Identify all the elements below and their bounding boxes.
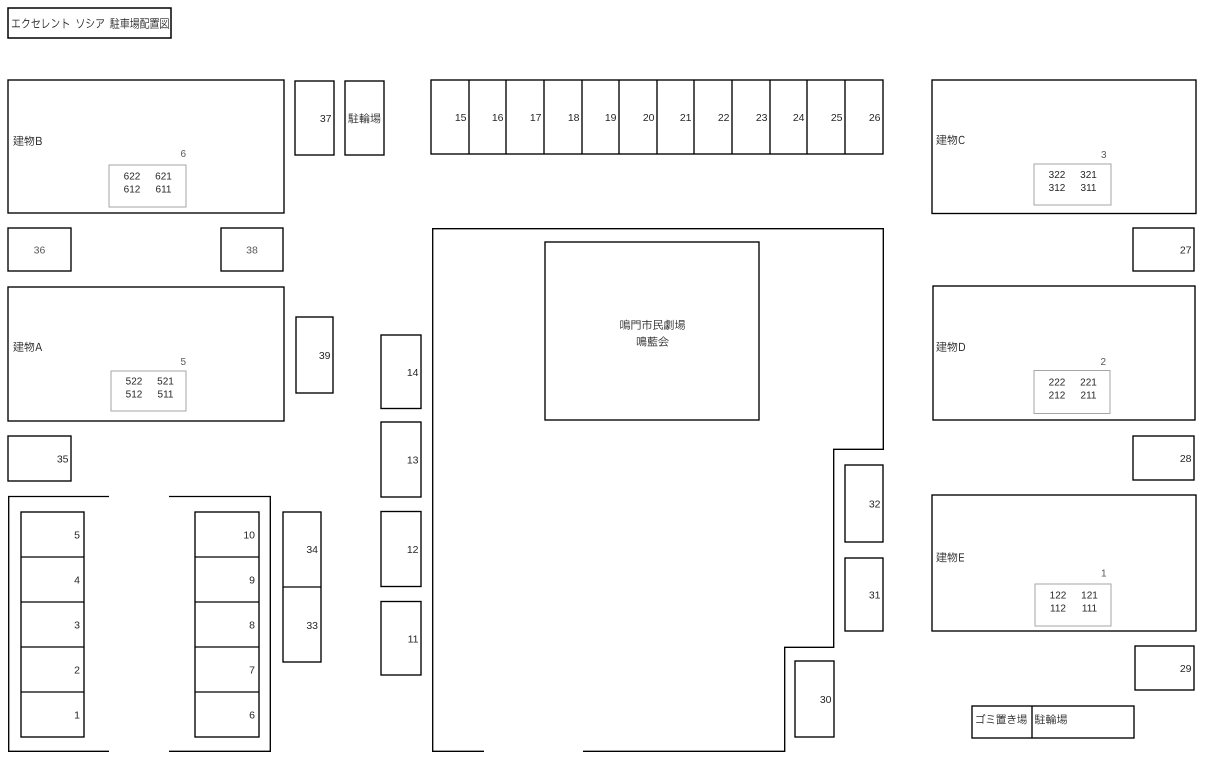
svg-text:1: 1 bbox=[74, 710, 80, 722]
svg-text:9: 9 bbox=[249, 575, 255, 587]
svg-text:25: 25 bbox=[831, 112, 843, 124]
svg-text:12: 12 bbox=[407, 544, 419, 556]
svg-text:17: 17 bbox=[530, 112, 542, 124]
svg-text:18: 18 bbox=[568, 112, 580, 124]
svg-text:33: 33 bbox=[306, 620, 318, 632]
svg-text:3: 3 bbox=[1101, 150, 1107, 161]
svg-text:5: 5 bbox=[74, 530, 80, 542]
svg-text:321: 321 bbox=[1080, 170, 1097, 181]
svg-text:7: 7 bbox=[249, 665, 255, 677]
svg-text:35: 35 bbox=[57, 454, 69, 466]
svg-text:2: 2 bbox=[1100, 357, 1106, 368]
svg-text:28: 28 bbox=[1180, 453, 1192, 465]
svg-text:39: 39 bbox=[319, 350, 331, 362]
svg-text:10: 10 bbox=[243, 530, 255, 542]
svg-text:621: 621 bbox=[155, 171, 172, 182]
svg-text:122: 122 bbox=[1050, 590, 1067, 601]
svg-text:14: 14 bbox=[407, 367, 419, 379]
svg-text:611: 611 bbox=[156, 184, 172, 195]
svg-text:511: 511 bbox=[158, 389, 174, 400]
svg-text:522: 522 bbox=[126, 376, 143, 387]
svg-text:26: 26 bbox=[869, 112, 881, 124]
svg-text:1: 1 bbox=[1101, 569, 1107, 580]
svg-text:221: 221 bbox=[1080, 377, 1097, 388]
svg-text:311: 311 bbox=[1081, 183, 1097, 194]
svg-text:312: 312 bbox=[1049, 183, 1066, 194]
svg-text:36: 36 bbox=[34, 245, 46, 257]
svg-text:37: 37 bbox=[320, 113, 332, 125]
svg-text:31: 31 bbox=[869, 590, 881, 602]
svg-text:30: 30 bbox=[820, 694, 832, 706]
svg-text:38: 38 bbox=[246, 245, 258, 257]
svg-text:111: 111 bbox=[1082, 603, 1098, 614]
svg-text:24: 24 bbox=[793, 112, 805, 124]
svg-text:11: 11 bbox=[408, 633, 419, 645]
svg-text:112: 112 bbox=[1050, 603, 1066, 614]
svg-text:6: 6 bbox=[249, 710, 255, 722]
svg-text:34: 34 bbox=[306, 544, 318, 556]
svg-text:6: 6 bbox=[180, 149, 186, 160]
svg-text:212: 212 bbox=[1049, 390, 1066, 401]
svg-text:5: 5 bbox=[180, 357, 186, 368]
svg-text:612: 612 bbox=[124, 184, 141, 195]
svg-text:15: 15 bbox=[455, 112, 467, 124]
svg-text:521: 521 bbox=[157, 376, 174, 387]
svg-text:20: 20 bbox=[643, 112, 655, 124]
svg-text:2: 2 bbox=[74, 665, 80, 677]
svg-text:16: 16 bbox=[492, 112, 504, 124]
svg-text:322: 322 bbox=[1049, 170, 1066, 181]
svg-text:222: 222 bbox=[1049, 377, 1066, 388]
svg-text:27: 27 bbox=[1180, 245, 1192, 257]
svg-text:3: 3 bbox=[74, 620, 80, 632]
svg-text:23: 23 bbox=[756, 112, 768, 124]
svg-text:32: 32 bbox=[869, 499, 881, 511]
svg-text:622: 622 bbox=[124, 171, 141, 182]
svg-text:21: 21 bbox=[680, 112, 692, 124]
svg-text:8: 8 bbox=[249, 620, 255, 632]
svg-text:121: 121 bbox=[1081, 590, 1098, 601]
svg-text:19: 19 bbox=[605, 112, 617, 124]
svg-text:211: 211 bbox=[1081, 390, 1097, 401]
svg-text:13: 13 bbox=[407, 455, 419, 467]
svg-text:22: 22 bbox=[718, 112, 730, 124]
svg-text:512: 512 bbox=[126, 389, 143, 400]
svg-text:4: 4 bbox=[74, 575, 80, 587]
svg-text:29: 29 bbox=[1180, 663, 1192, 675]
